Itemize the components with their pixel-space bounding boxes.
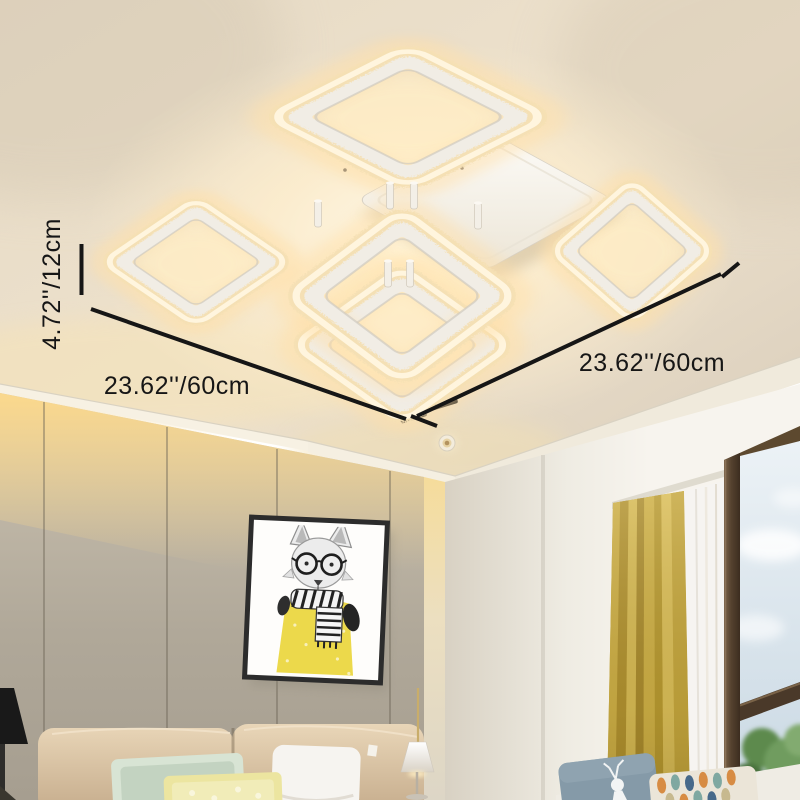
wall-corner-line	[541, 455, 545, 800]
height-dimension-label: 4.72''/12cm	[38, 218, 66, 350]
product-photo-ceiling-light: 4.72''/12cm 23.62''/60cm 23.62''/60cm	[0, 0, 800, 800]
bed	[38, 724, 424, 800]
headboard-tab	[367, 744, 377, 756]
scene: 4.72''/12cm 23.62''/60cm 23.62''/60cm	[0, 0, 800, 800]
window-stile	[724, 453, 740, 800]
window	[724, 426, 800, 800]
wall-artwork-fox	[244, 516, 393, 691]
width-left-dimension-label: 23.62''/60cm	[104, 372, 250, 400]
pillow-white	[271, 745, 361, 800]
pillow-yellow-floral	[163, 772, 282, 800]
sheer-curtain	[684, 481, 724, 800]
floor-lamp-base	[406, 794, 428, 800]
recessed-spotlight	[436, 434, 458, 452]
width-right-dimension-label: 23.62''/60cm	[579, 349, 725, 377]
